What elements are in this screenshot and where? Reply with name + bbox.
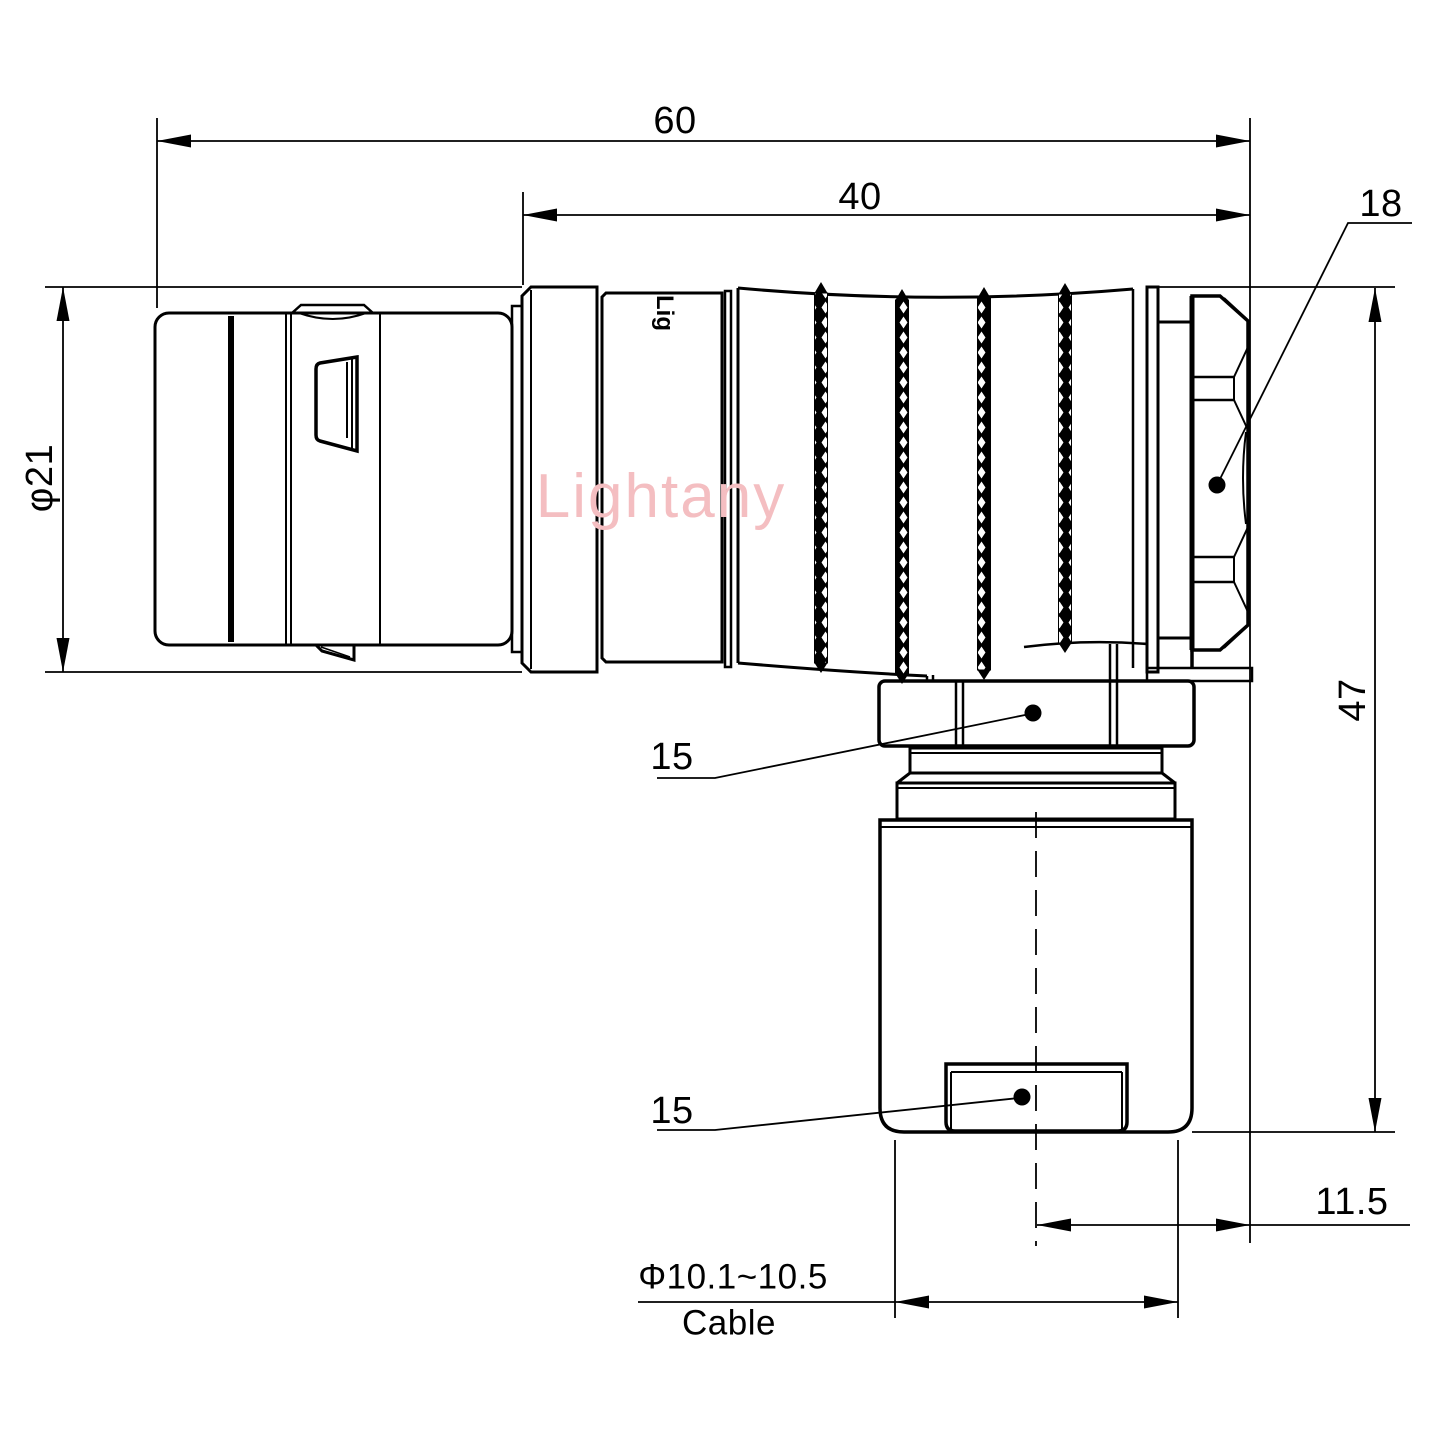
watermark-text: Lightany xyxy=(536,466,786,528)
arrow-icon xyxy=(1037,1219,1071,1232)
knurl-band xyxy=(815,282,828,673)
arrow-icon xyxy=(157,135,191,148)
arrow-icon xyxy=(1369,1098,1382,1132)
connector-side-view-drawing xyxy=(0,0,1440,1440)
dim-18-label: 18 xyxy=(1359,185,1402,223)
dim-11p5-label: 11.5 xyxy=(1315,1183,1388,1221)
cable-diameter-label: Φ10.1~10.5 xyxy=(638,1260,828,1295)
arrow-icon xyxy=(1369,288,1382,322)
leader-dot xyxy=(1209,477,1226,494)
leader-line-15-lower xyxy=(657,1098,1019,1130)
knurl-band xyxy=(896,289,909,684)
dimension-arrows xyxy=(57,135,1382,1309)
dim-15-upper-label: 15 xyxy=(650,738,693,776)
arrow-icon xyxy=(1216,1219,1250,1232)
dim-60-label: 60 xyxy=(653,102,696,140)
release-sleeve xyxy=(155,305,522,660)
knurled-grip xyxy=(738,287,1158,681)
arrow-icon xyxy=(57,287,70,321)
dim-15-lower-label: 15 xyxy=(650,1092,693,1130)
brand-mark: Lig xyxy=(652,295,676,331)
dim-40-label: 40 xyxy=(838,178,881,216)
leader-dot xyxy=(1014,1089,1031,1106)
dim-47-label: 47 xyxy=(1334,678,1372,721)
cable-label: Cable xyxy=(682,1306,776,1341)
arrow-icon xyxy=(1144,1296,1178,1309)
arrow-icon xyxy=(1216,135,1250,148)
arrow-icon xyxy=(895,1296,929,1309)
gland-steps xyxy=(897,748,1175,819)
arrow-icon xyxy=(1216,209,1250,222)
connector-body xyxy=(155,287,1252,1132)
dimension-lines xyxy=(45,118,1412,1318)
technical-drawing-page: 60 40 18 φ21 47 15 15 11.5 Φ10.1~10.5 Ca… xyxy=(0,0,1440,1440)
hex-coupling-nut xyxy=(1147,296,1252,681)
leader-dot xyxy=(1025,705,1042,722)
arrow-icon xyxy=(57,638,70,672)
knurl-bands xyxy=(815,282,1072,684)
knurl-band xyxy=(1059,283,1072,653)
knurl-band xyxy=(978,287,991,680)
arrow-icon xyxy=(523,209,557,222)
nut-neck xyxy=(1158,322,1192,638)
diameter-21-label: φ21 xyxy=(21,444,59,512)
